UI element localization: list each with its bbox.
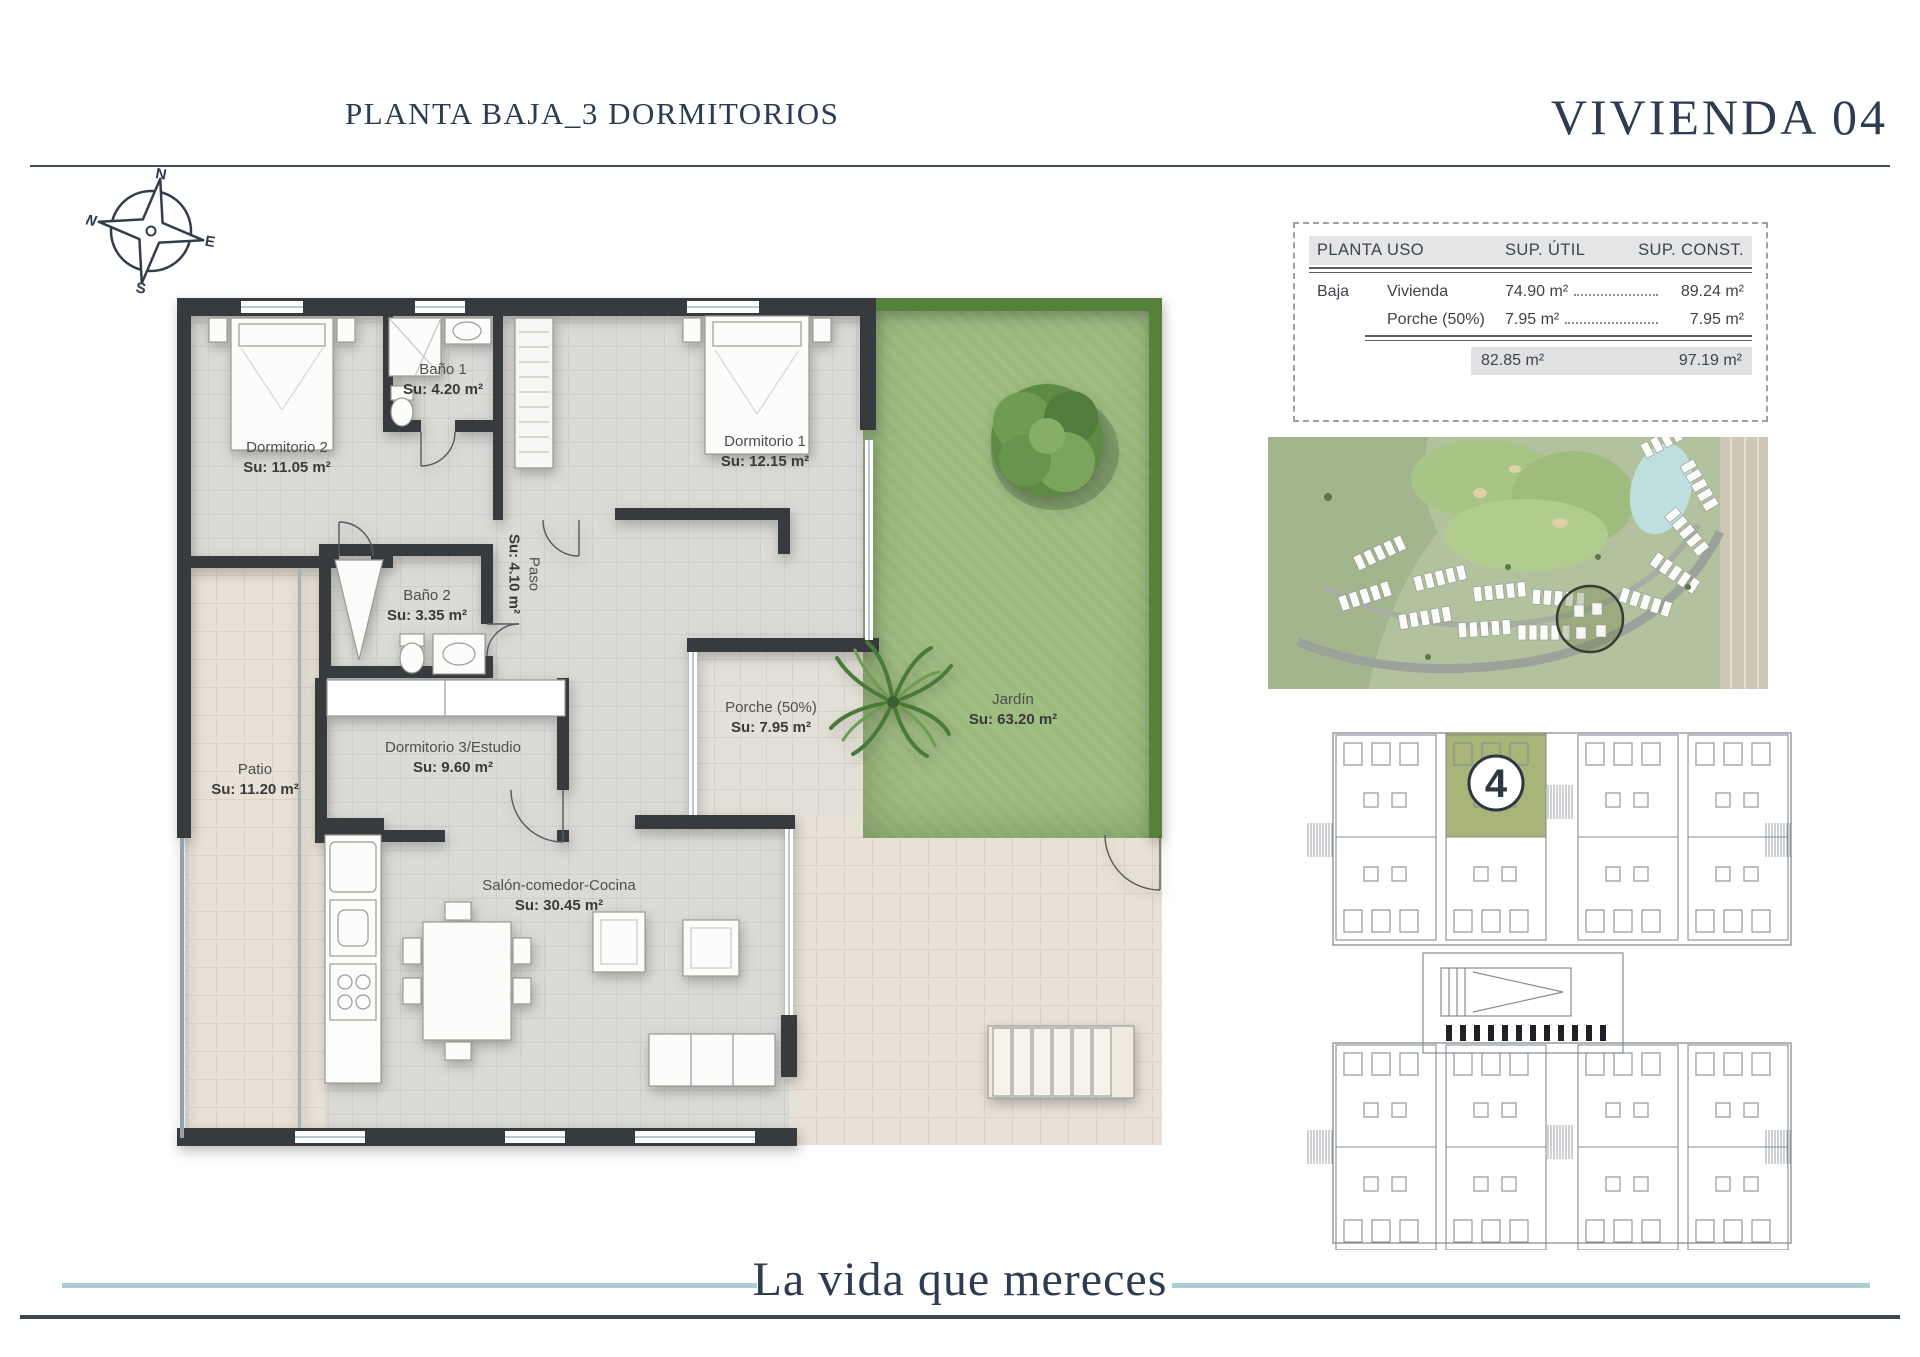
room-label-paso: Paso Su: 4.10 m² [503,534,544,614]
header-rule [30,165,1890,167]
room-area: Su: 11.05 m² [243,458,331,478]
cell-sup-util: 74.90 m² [1505,283,1568,301]
room-area: Su: 4.10 m² [503,534,523,614]
site-highlight-circle [1557,586,1623,652]
room-name: Dormitorio 3/Estudio [385,739,521,756]
table-row: Baja Vivienda 74.90 m² 89.24 m² [1309,283,1752,301]
dotted-leader [1574,294,1658,296]
table-row: Porche (50%) 7.95 m² 7.95 m² [1309,311,1752,329]
palm-tree [831,642,951,756]
total-sup-util: 82.85 m² [1481,352,1544,370]
room-area: Su: 4.20 m² [403,380,483,400]
site-plan-aerial [1268,437,1768,689]
cell-planta: Baja [1317,283,1387,301]
col-header-uso: USO [1387,241,1505,260]
room-area: Su: 63.20 m² [969,710,1057,730]
room-name: Jardín [992,691,1034,708]
col-header-sup-util: SUP. ÚTIL [1505,241,1638,260]
room-area: Su: 3.35 m² [387,606,467,626]
compass-s-label: S [134,279,147,296]
room-label-dormitorio2: Dormitorio 2 Su: 11.05 m² [243,438,331,479]
footer-rule [20,1315,1900,1319]
unit-title: VIVIENDA 04 [1551,88,1888,146]
compass-e-label: E [204,233,216,251]
room-name: Dormitorio 1 [724,433,806,450]
room-name: Paso [525,557,542,591]
dotted-leader [1565,322,1658,324]
room-area: Su: 12.15 m² [721,452,809,472]
cell-sup-const: 89.24 m² [1664,283,1744,301]
compass-w-label: W [86,211,99,230]
hedge-top [863,298,1162,311]
col-header-planta: PLANTA [1317,241,1387,260]
room-area: Su: 9.60 m² [385,758,521,778]
total-sup-const: 97.19 m² [1679,352,1742,370]
room-label-dormitorio1: Dormitorio 1 Su: 12.15 m² [721,432,809,473]
room-name: Porche (50%) [725,699,817,716]
tagline: La vida que mereces [0,1252,1920,1307]
room-label-salon: Salón-comedor-Cocina Su: 30.45 m² [482,876,635,917]
unit-number: 4 [1485,762,1508,806]
room-label-porche: Porche (50%) Su: 7.95 m² [725,698,817,739]
brochure-page: PLANTA BAJA_3 DORMITORIOS VIVIENDA 04 N … [0,0,1920,1357]
room-area: Su: 30.45 m² [482,896,635,916]
room-label-patio: Patio Su: 11.20 m² [211,760,299,801]
table-divider [1309,267,1752,273]
cell-sup-util: 7.95 m² [1505,311,1559,329]
room-name: Baño 2 [403,587,451,604]
room-area: Su: 11.20 m² [211,780,299,800]
table-divider [1365,335,1752,341]
room-label-bano1: Baño 1 Su: 4.20 m² [403,360,483,401]
compass-n-label: N [154,166,168,184]
col-header-sup-const: SUP. CONST. [1638,241,1744,260]
cell-sup-const: 7.95 m² [1664,311,1744,329]
table-header-row: PLANTA USO SUP. ÚTIL SUP. CONST. [1309,236,1752,265]
page-title: PLANTA BAJA_3 DORMITORIOS [345,96,839,132]
building-key-plan: 4 [1278,725,1803,1250]
room-name: Patio [238,761,272,778]
room-name: Dormitorio 2 [246,439,328,456]
tree [991,384,1119,510]
room-area: Su: 7.95 m² [725,718,817,738]
hedge-right [1149,298,1162,838]
cell-uso: Porche (50%) [1387,311,1505,329]
room-name: Salón-comedor-Cocina [482,877,635,894]
surface-area-table: PLANTA USO SUP. ÚTIL SUP. CONST. Baja Vi… [1293,222,1768,422]
courtyard-pool [1423,953,1623,1053]
room-label-bano2: Baño 2 Su: 3.35 m² [387,586,467,627]
room-label-jardin: Jardín Su: 63.20 m² [969,690,1057,731]
cell-uso: Vivienda [1387,283,1505,301]
room-label-dormitorio3: Dormitorio 3/Estudio Su: 9.60 m² [385,738,521,779]
floor-plan: Dormitorio 2 Su: 11.05 m² Baño 1 Su: 4.2… [175,290,1165,1155]
room-name: Baño 1 [419,361,467,378]
table-totals-row: 82.85 m² 97.19 m² [1471,347,1752,375]
sun-loungers [1446,1025,1606,1041]
compass-rose-icon: N E S W [86,166,216,296]
